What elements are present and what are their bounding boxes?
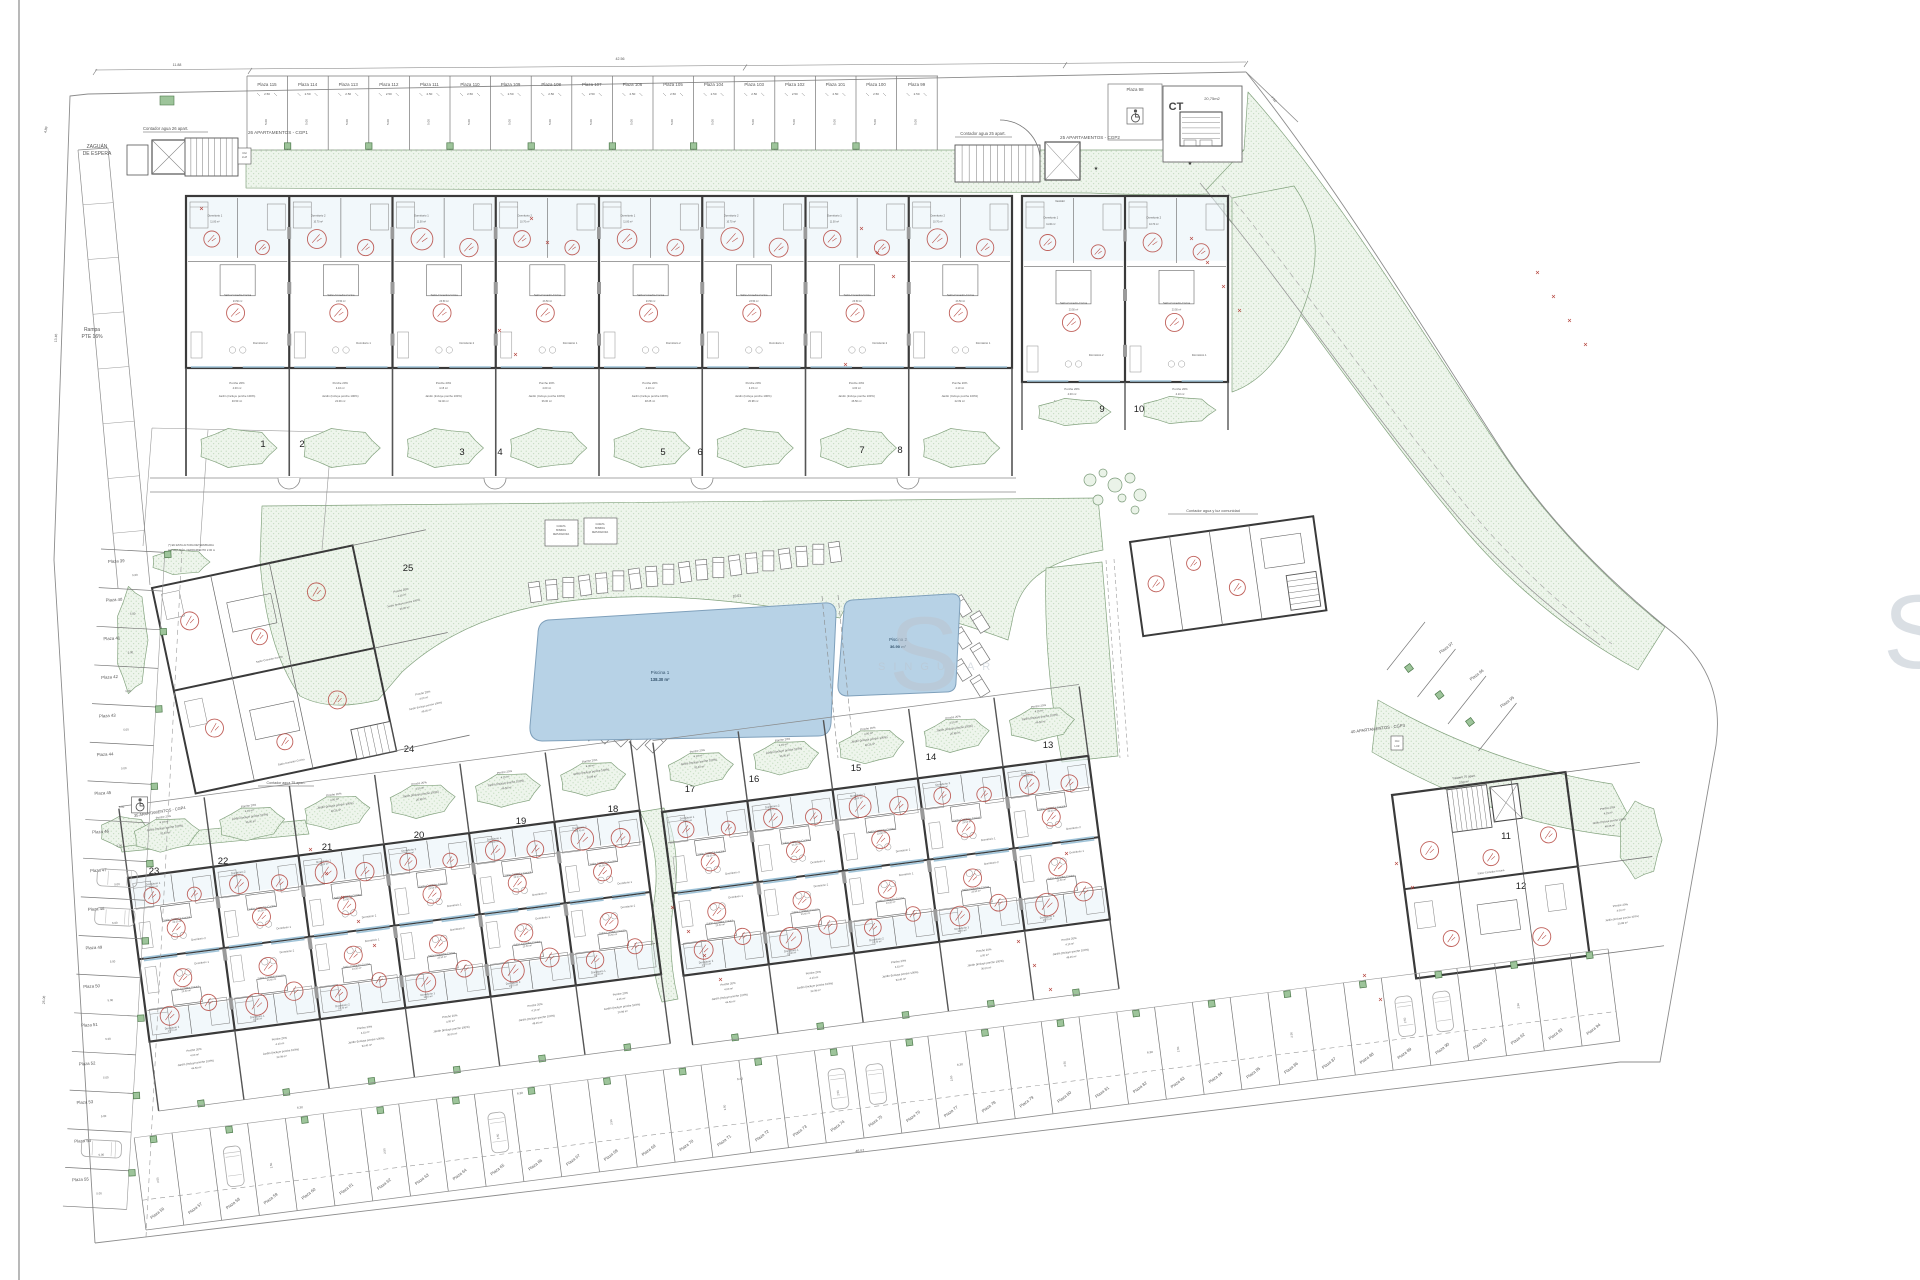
door-mark-circle [250, 627, 269, 646]
sun-lounger [713, 558, 724, 578]
watermark: SSINGULARS [878, 574, 1920, 713]
plan-label: DEPURADORA [592, 531, 609, 534]
building-top-1-8: Dormitorio 111.00 m²Salón-Comedor-Cocina… [186, 196, 1012, 476]
label-contador-26: Contador agua 26 apart. [143, 126, 188, 131]
parking-stall-label: Plaza 71 [716, 1133, 733, 1147]
caseta-label: CASETA [556, 525, 565, 528]
plan-label: 23.50 m² [646, 300, 656, 303]
door-mark-circle [1165, 313, 1183, 331]
plan-label: 5.00 [589, 119, 593, 125]
plan-label: 48.25 m² [645, 399, 655, 403]
plan-label: Porche 20% [891, 958, 907, 964]
door-mark-circle [962, 868, 982, 888]
parking-stall-label: Plaza 104 [704, 82, 724, 87]
garden-mound [924, 429, 1000, 468]
plan-label: 5.00 [467, 119, 471, 125]
plan-label: 5.00 [105, 1037, 111, 1041]
plan-label: Porche 20% [357, 1024, 373, 1030]
plan-label: BOMBAS [556, 529, 566, 532]
planter [690, 143, 696, 149]
plan-label: 4.10 m² [646, 386, 655, 390]
parking-stall-label: Plaza 62 [376, 1177, 393, 1191]
plan-label: Porche 20% [326, 791, 342, 797]
sun-lounger [795, 546, 807, 567]
parking-stall-label: Plaza 99 [908, 82, 926, 87]
parking-stall-label: Plaza 111 [420, 82, 439, 87]
door-mark-circle [1442, 930, 1460, 948]
parking-stall-label: Plaza 85 [1245, 1065, 1262, 1079]
room-label: Dormitorio 2 [895, 847, 911, 853]
plan-label: 5.00 [508, 119, 512, 125]
plan-label: 5.00 [112, 921, 118, 925]
plan-label: Porche 20% [186, 1047, 202, 1053]
plan-label: 4.10 m² [336, 386, 345, 390]
jardin-label: Jardín (Incluye porche 100%) [425, 394, 462, 398]
plan-label: 6.30 [737, 1077, 744, 1082]
plan-label: 48.25 m² [421, 708, 432, 714]
room-label: Salón-Comedor-Cocina [256, 654, 284, 664]
green-east-of-9-10 [1232, 186, 1315, 392]
parking-stall-label: Plaza 61 [338, 1182, 355, 1196]
plan-label: 2.50 [751, 92, 757, 96]
plan-label: CGI [1395, 739, 1400, 743]
planter [772, 143, 778, 149]
plan-label: 4.10 m² [1065, 941, 1074, 946]
plan-label: Jardín (Incluye porche 100%) [1605, 914, 1639, 922]
parking-stall-label: Plaza 88 [1359, 1051, 1376, 1065]
door-mark-circle [536, 304, 554, 322]
plan-label: 46.50 m² [851, 399, 861, 403]
plan-label: 23.50 m² [267, 978, 277, 982]
parking-stall-label: Plaza 75 [867, 1114, 884, 1128]
parking-stall-label: Plaza 63 [414, 1172, 431, 1186]
plan-label: 4.00 m² [1068, 392, 1077, 396]
plan-label: 23.50 m² [801, 912, 811, 916]
planter [377, 1107, 384, 1114]
plan-label: 20.98 m² [1617, 920, 1628, 925]
plan-label: 5.00 [711, 119, 715, 125]
door-mark-circle [1147, 575, 1165, 593]
plan-label: 5.00 [832, 119, 836, 125]
plan-label: CGI [242, 151, 247, 155]
porche-label: Porche 20% [849, 381, 865, 385]
plan-label: Porche 20% [1613, 902, 1629, 908]
plan-label: 4.00 m² [980, 953, 989, 958]
tree [1093, 495, 1103, 505]
planter [133, 1092, 140, 1099]
plan-label: 2.50 [1176, 1046, 1181, 1052]
door-mark-circle [1532, 927, 1552, 947]
room-label: Dormitorio 2 [813, 882, 829, 888]
parking-stall-label: Plaza 39 [108, 558, 126, 564]
plan-label: 20.98 m² [617, 1009, 628, 1014]
plan-label: 36.00 m² [447, 1031, 458, 1036]
plan-label: 5.00 [116, 843, 122, 847]
elevator [152, 140, 186, 174]
plan-label: Porche 20% [497, 769, 513, 775]
plan-label: 23.50 m² [181, 989, 191, 993]
parking-stall-label: Plaza 84 [1207, 1070, 1224, 1084]
door-mark-circle [743, 304, 761, 322]
plan-label: 23.50 m² [343, 897, 353, 901]
plan-label: 2.50 [670, 92, 676, 96]
stairs [1286, 571, 1321, 610]
parking-row-top: Plaza 1152.505.00Plaza 1142.505.00Plaza … [247, 76, 938, 150]
plan-label: LUZ [242, 155, 247, 159]
room-label: Dormitorio 2 [873, 341, 888, 345]
sun-lounger [728, 555, 742, 576]
parking-stall-label: Plaza 100 [866, 82, 886, 87]
plan-label: 2.50 [1062, 1061, 1067, 1067]
plan-label: Porche 20% [156, 814, 172, 820]
plan-label: Porche 20% [442, 1013, 458, 1019]
porche-label: Porche 20% [746, 381, 762, 385]
plan-label: 5.00 [128, 650, 134, 654]
stairs [1447, 785, 1492, 833]
plan-label: 4.00 m² [233, 386, 242, 390]
parking-stall-label: Plaza 108 [541, 82, 561, 87]
sun-lounger [970, 675, 990, 698]
parking-stall-label: Plaza 74 [829, 1119, 846, 1133]
room-label: Dormitorio 2 [191, 936, 207, 942]
unit-number: 10 [1134, 404, 1145, 415]
jardin-label: Jardín (Incluye porche 100%) [322, 394, 359, 398]
room-label: Salón-Comedor-Cocina [947, 293, 975, 297]
plan-label: Porche 20% [690, 748, 706, 754]
plan-label: 2.50 [1516, 1002, 1521, 1008]
sun-lounger [628, 568, 642, 589]
parking-stall-label: Plaza 52 [79, 1060, 97, 1066]
stairs [351, 721, 396, 759]
parking-stall-label: Plaza 81 [1094, 1085, 1111, 1099]
plan-label: 5.00 [751, 119, 755, 125]
planter [301, 1116, 308, 1123]
unit-number: 13 [1043, 740, 1054, 751]
room-label: Dormitorio 1 [356, 341, 371, 345]
caseta-box [545, 520, 578, 546]
planter [1208, 1000, 1215, 1007]
plan-label: 36.00 m² [981, 965, 992, 970]
parking-stall-label: Plaza 113 [339, 82, 359, 87]
door-mark-circle [343, 945, 363, 965]
plan-label: 2.50 [873, 92, 879, 96]
watermark-letter-edge: S [1883, 574, 1920, 691]
parking-stall-label: Plaza 91 [1472, 1036, 1489, 1050]
plan-label: 4.10 m² [531, 1007, 540, 1012]
parking-stall-label: Plaza 42 [101, 674, 119, 680]
plan-label: 2.50 [495, 1133, 500, 1139]
room-label: Dormitorio 1 [1069, 849, 1085, 855]
room-label: Dormitorio 1 [617, 880, 633, 886]
label-ct-area: 20,75m2 [1204, 96, 1220, 101]
plan-label: 5.00 [110, 959, 116, 963]
plan-label: 4.10 m² [275, 1041, 284, 1046]
plan-label: 23.50 m² [1069, 308, 1079, 311]
sun-lounger [563, 578, 574, 598]
plan-label: 2.50 [589, 92, 595, 96]
door-mark-circle [173, 968, 193, 988]
parking-stall-label: Plaza 112 [379, 82, 399, 87]
unit-number: 6 [697, 447, 702, 458]
planter [226, 1126, 233, 1133]
plan-label: Porche 20% [612, 991, 628, 997]
plan-label: 23.50 m² [336, 300, 346, 303]
parking-stall-label: Plaza 56 [149, 1206, 166, 1220]
garden-mound [408, 429, 484, 468]
sun-lounger [545, 579, 557, 600]
unit-number: 25 [403, 563, 414, 574]
plan-label: DEPURADORA [553, 533, 570, 536]
watermark-letter: S [889, 596, 959, 713]
planter [160, 628, 167, 635]
sun-lounger [613, 571, 624, 591]
parking-stall-label: Plaza 55 [72, 1176, 90, 1182]
label-contador-comunidad: Contador agua y luz comunidad [1186, 509, 1240, 513]
plan-label: 4.15 m² [895, 964, 904, 969]
building-block-18-23: Dormitorio 111.00 m²Salón-Comedor-Cocina… [119, 739, 671, 1112]
room-label: Dormitorio 1 [899, 871, 915, 877]
planter [1435, 971, 1442, 978]
planter [164, 551, 171, 558]
caseta-box [584, 518, 617, 544]
room-label: Dormitorio 2 [1066, 825, 1082, 831]
plan-label: Porche 20% [1064, 387, 1080, 391]
parking-stall-label: Plaza 49 [85, 945, 103, 951]
label-zaguan: ZAGUÁN [87, 143, 108, 150]
plan-label: 36.00 m² [542, 399, 552, 403]
car-outline [865, 1063, 887, 1105]
parking-stall-label: Plaza 86 [1283, 1060, 1300, 1074]
stairs [185, 138, 238, 176]
porche-label: Porche 20% [436, 381, 452, 385]
unit-number: 1 [260, 439, 265, 450]
parking-stall-label: Plaza 109 [501, 82, 521, 87]
plan-label: 2.50 [711, 92, 717, 96]
tree [1108, 478, 1122, 492]
planter [1586, 952, 1593, 959]
door-mark-circle [707, 902, 727, 922]
plan-label: 46.50 m² [232, 399, 242, 403]
unit-number: 8 [897, 445, 902, 456]
planter [147, 860, 154, 867]
plan-label: 4.00 m² [1616, 908, 1625, 913]
room-label: Vestidor [1055, 199, 1065, 203]
plan-label: Porche 20% [527, 1002, 543, 1008]
room-label: Dormitorio 1 [365, 937, 381, 943]
room-label: Salón-Comedor-Cocina [1060, 301, 1088, 305]
door-mark-circle [1419, 840, 1439, 860]
plan-label: 2.50 [1289, 1031, 1294, 1037]
parking-stall-label: Plaza 80 [1056, 1090, 1073, 1104]
plan-label: 23.50 m² [513, 875, 523, 879]
door-mark-circle [428, 934, 448, 954]
sun-lounger [763, 551, 774, 571]
parking-stall-label: Plaza 51 [81, 1022, 99, 1028]
garden-mound [614, 429, 690, 468]
car-outline [487, 1112, 509, 1154]
planter [1405, 664, 1414, 673]
room-label: Dormitorio 1 [1044, 215, 1059, 219]
green-band-right [1206, 92, 1665, 670]
plan-label: ★ [1094, 166, 1099, 172]
planter [366, 143, 372, 149]
plan-label: 11.00 m² [210, 221, 219, 224]
parking-stall-label: Plaza 110 [460, 82, 480, 87]
plan-label: Porche 20% [415, 689, 431, 696]
sun-lounger [813, 544, 824, 564]
parking-stall-label: Plaza 95 [1499, 694, 1516, 708]
plan-label: 2.50 [949, 1075, 954, 1081]
sun-lounger [528, 581, 542, 602]
room-label: Dormitorio 1 [728, 894, 744, 900]
room-label: Dormitorio 1 [194, 960, 210, 966]
plan-label: 5.00 [305, 119, 309, 125]
plan-label: 5.00 [103, 1075, 109, 1079]
wheelchair-icon [132, 797, 148, 813]
parking-stall-label: Plaza 92 [1510, 1031, 1527, 1045]
room-label: Salón-Comedor-Cocina [1477, 868, 1505, 876]
plan-label: 2.50 [836, 1090, 841, 1096]
parking-stall-label: Plaza 50 [83, 983, 101, 989]
door-mark-circle [1482, 849, 1500, 867]
tree [1131, 506, 1139, 514]
parking-stall-label: Plaza 40 [106, 597, 124, 603]
plan-label: 2.50 [722, 1104, 727, 1110]
tree [1125, 473, 1135, 483]
plan-label: 46.50 m² [725, 999, 736, 1004]
label-apartments-cgp2: 25 APARTAMENTOS - CGP2 [1060, 135, 1120, 140]
plan-label: 5.00 [873, 119, 877, 125]
unit-number: 15 [851, 763, 862, 774]
garden-mound [118, 586, 148, 693]
planter [155, 706, 162, 713]
plan-label: 11.00 m² [830, 221, 839, 224]
planter [1057, 1020, 1064, 1027]
parking-stall-label: Plaza 103 [744, 82, 764, 87]
planter [830, 1049, 837, 1056]
room-label: Salón-Comedor-Cocina [224, 293, 252, 297]
plan-label: 20.98 m² [748, 399, 758, 403]
parking-stall-label: Plaza 96 [1469, 667, 1486, 681]
plan-label: 2.50 [792, 92, 798, 96]
plan-label: 46.57 [855, 1148, 864, 1153]
porche-label: Porche 20% [229, 381, 245, 385]
plan-label: 5.00 [121, 766, 127, 770]
plan-label: 2.50 [155, 1177, 160, 1183]
planter [755, 1058, 762, 1065]
tree [1099, 469, 1107, 477]
parking-stall-label: Plaza 43 [99, 713, 117, 719]
plan-label: Porche 20% [775, 737, 791, 743]
planter [528, 143, 534, 149]
plan-label: 2.50 [1402, 1017, 1407, 1023]
door-mark-circle [599, 911, 619, 931]
parking-stall-label: Plaza 67 [565, 1152, 582, 1166]
site-plan-drawing: RampaPTE 16%ZAGUÁNDE ESPERA11.8842.567.5… [0, 0, 1920, 1280]
parking-stall-label: Plaza 41 [103, 635, 121, 641]
garden-mound [304, 429, 380, 468]
parking-stall-label: Plaza 57 [187, 1201, 204, 1215]
parking-stall-label: Plaza 59 [263, 1191, 280, 1205]
planter [1284, 990, 1291, 997]
planter [853, 143, 859, 149]
plan-label: 5.00 [132, 573, 138, 577]
parking-stall-label: Plaza 66 [527, 1157, 544, 1171]
plan-label: 4.00 m² [852, 386, 861, 390]
garden-mound [511, 429, 587, 468]
plan-label: 23.50 m² [1047, 809, 1057, 813]
room-label: Salón-Comedor-Cocina [327, 293, 355, 297]
door-mark-circle [640, 304, 658, 322]
room-label: Dormitorio 1 [535, 915, 551, 921]
plan-label: 4.00 m² [446, 1019, 455, 1024]
plan-label: 5.00 [123, 727, 129, 731]
label-apartments-cgp1: 26 APARTAMENTOS - CGP1 [248, 130, 308, 135]
parking-stall-label: Plaza 78 [981, 1099, 998, 1113]
plan-label: Porche 20% [411, 780, 427, 786]
plan-label: 4.89 [43, 126, 48, 133]
plan-label: 48.25 m² [532, 1020, 543, 1025]
plan-label: 2.50 [467, 92, 473, 96]
plan-label: 5.00 [264, 119, 268, 125]
plan-label: Porche 20% [1172, 387, 1188, 391]
planter [981, 1029, 988, 1036]
plan-label: 5.00 [119, 805, 125, 809]
plan-label: 2.50 [548, 92, 554, 96]
plan-label: 5.00 [629, 119, 633, 125]
room-label: Dormitorio 1 [976, 341, 991, 345]
plan-label: 5.00 [548, 119, 552, 125]
plan-label: 5.00 [386, 119, 390, 125]
parking-stall-label: Plaza 46 [92, 829, 110, 835]
tree [1134, 489, 1146, 501]
parking-stall-label: Plaza 94 [1585, 1022, 1602, 1036]
plan-label: 4.10 m² [955, 386, 964, 390]
plan-label: 13.46 [54, 333, 59, 342]
parking-stall-label: Plaza 107 [582, 82, 602, 87]
plan-label: 22.09 m² [955, 399, 965, 403]
plan-label: 10.70 m² [1149, 223, 1159, 226]
sun-lounger [578, 575, 592, 596]
plan-label: 4.15 m² [749, 386, 758, 390]
room-label: Dormitorio 1 [563, 341, 578, 345]
plan-label: 23.50 m² [792, 843, 802, 847]
tree [1084, 474, 1096, 486]
plan-label: 6.30 [297, 1105, 304, 1110]
parking-stall-label: Plaza 79 [1018, 1094, 1035, 1108]
plan-label: BOMBAS [595, 527, 605, 530]
room-label: Dormitorio 2 [532, 891, 548, 897]
parking-stall-label: Plaza 60 [300, 1186, 317, 1200]
plan-label: 11.00 m² [417, 221, 426, 224]
plan-label: 23.50 m² [608, 933, 618, 937]
plan-label: 23.50 m² [439, 300, 449, 303]
site-note: (*) EN ESTA ALTURA DETERMINADA [168, 543, 214, 547]
garden-mound [717, 429, 793, 468]
room-label: Salón-Comedor-Cocina [431, 293, 459, 297]
plan-label: 2.50 [629, 92, 635, 96]
parking-stall-label: Plaza 69 [641, 1143, 658, 1157]
plan-label: 6.30 [957, 1062, 964, 1067]
pool-1-label: Piscina 1 [651, 670, 670, 675]
room-label: Dormitorio 1 [827, 214, 842, 218]
unit-number: 9 [1099, 404, 1104, 415]
planter [1133, 1010, 1140, 1017]
parking-stall-label: Plaza 97 [1438, 640, 1455, 654]
plan-label: 6.30 [517, 1091, 524, 1096]
planter [284, 143, 290, 149]
jardin-label: Jardín (Incluye porche 100%) [632, 394, 669, 398]
